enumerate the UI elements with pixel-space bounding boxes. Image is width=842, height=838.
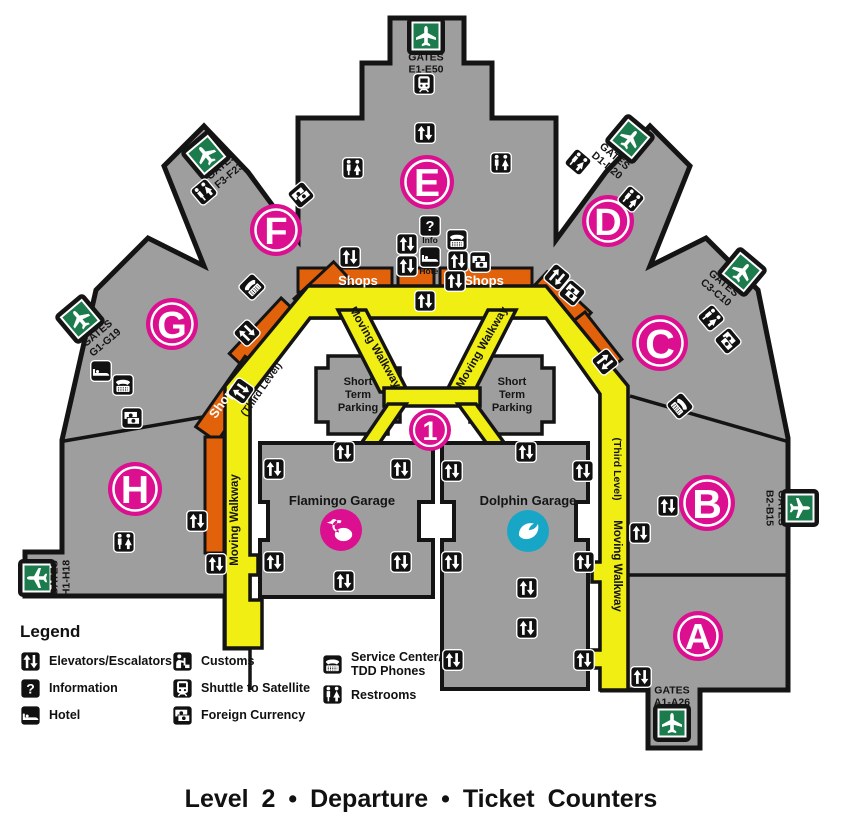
elev-icon — [264, 552, 285, 573]
terminal-f-marker: F — [250, 204, 302, 256]
dolphin-garage-label: Dolphin Garage — [480, 493, 577, 508]
elev-icon — [391, 552, 412, 573]
rest-icon — [114, 532, 135, 553]
elev-icon — [574, 552, 595, 573]
flamingo-icon — [320, 509, 362, 551]
page-title: Level 2 • Departure • Ticket Counters — [0, 785, 842, 814]
dolphin-icon — [507, 510, 549, 552]
legend-item: Customs — [172, 650, 322, 672]
elev-icon — [517, 578, 538, 599]
terminal-c-marker: C — [632, 315, 688, 371]
elev-icon — [630, 523, 651, 544]
restrooms-icon — [322, 684, 343, 705]
elev-icon — [206, 554, 227, 575]
legend-column: Elevators/Escalators Information Hotel — [20, 650, 172, 731]
elev-icon — [187, 511, 208, 532]
elev-icon — [415, 291, 436, 312]
svg-text:GATES: GATES — [49, 560, 61, 595]
moving-walkway-label: Moving Walkway — [611, 520, 623, 612]
svg-text:A1-A26: A1-A26 — [654, 697, 690, 709]
gates-h-label: GATESH1-H18 — [49, 560, 73, 596]
legend-item: Service Center/ TDD Phones — [322, 650, 492, 679]
elev-icon — [573, 461, 594, 482]
legend-item-label: Hotel — [49, 708, 80, 722]
hotel-icon — [420, 247, 441, 268]
short-term-parking-label: Term — [499, 389, 525, 401]
foreign-currency-icon — [172, 705, 193, 726]
svg-text:H1-H18: H1-H18 — [61, 560, 73, 596]
terminal-h-marker: H — [108, 462, 162, 516]
legend-item-label: Foreign Currency — [201, 708, 305, 722]
elev-icon — [391, 459, 412, 480]
flamingo-garage-label: Flamingo Garage — [289, 493, 395, 508]
svg-text:GATES: GATES — [776, 490, 788, 525]
terminal-e-marker: E — [400, 155, 454, 209]
elev-icon — [334, 571, 355, 592]
legend: Legend Elevators/Escalators Information … — [20, 622, 500, 731]
legend-item-label: Shuttle to Satellite — [201, 681, 310, 695]
service-icon — [447, 230, 468, 251]
info-icon — [420, 216, 441, 237]
svg-text:E: E — [414, 162, 440, 205]
legend-item: Restrooms — [322, 684, 492, 706]
svg-text:F: F — [264, 211, 287, 253]
elev-icon — [442, 461, 463, 482]
shops-label: Shops — [338, 273, 378, 288]
gates-a-label: GATESA1-A26 — [654, 685, 690, 709]
short-term-parking-label: Term — [345, 389, 371, 401]
elev-icon — [445, 271, 466, 292]
shops-segment — [205, 437, 224, 553]
gates-e-sign — [407, 17, 445, 55]
elev-icon — [264, 459, 285, 480]
short-term-parking-label: Parking — [338, 402, 378, 414]
elev-icon — [397, 234, 418, 255]
terminal-b-marker: B — [679, 475, 735, 531]
svg-text:GATES: GATES — [654, 685, 689, 697]
terminal-g-marker: G — [146, 298, 198, 350]
legend-item-label: Restrooms — [351, 688, 416, 702]
svg-text:B2-B15: B2-B15 — [764, 490, 776, 526]
shuttle-icon — [414, 74, 435, 95]
customs-icon — [172, 651, 193, 672]
legend-item-label: Service Center/ TDD Phones — [351, 650, 442, 679]
currency-icon — [122, 408, 143, 429]
hotel-icon — [91, 361, 112, 382]
svg-text:1: 1 — [422, 416, 437, 446]
legend-item: Shuttle to Satellite — [172, 677, 322, 699]
airport-terminal-map: ? — [0, 0, 842, 838]
svg-text:A: A — [685, 616, 711, 657]
elev-icon — [516, 442, 537, 463]
elev-icon — [658, 496, 679, 517]
information-icon — [20, 678, 41, 699]
third-level-label: (Third Level) — [611, 437, 623, 500]
elev-icon — [334, 442, 355, 463]
elev-icon — [448, 251, 469, 272]
legend-column: Customs Shuttle to Satellite Foreign Cur… — [172, 650, 322, 731]
hotel-icon — [20, 705, 41, 726]
elev-icon — [340, 247, 361, 268]
legend-column: Service Center/ TDD Phones Restrooms — [322, 650, 492, 731]
moving-walkway-label: Moving Walkway — [229, 474, 241, 566]
elev-icon — [442, 552, 463, 573]
gates-b-label: GATESB2-B15 — [764, 490, 788, 526]
legend-item: Elevators/Escalators — [20, 650, 172, 672]
short-term-parking-label: Parking — [492, 402, 532, 414]
legend-heading: Legend — [20, 622, 500, 642]
gates-e-label: GATESE1-E50 — [408, 52, 443, 76]
elev-icon — [517, 618, 538, 639]
shuttle-to-satellite-icon — [172, 678, 193, 699]
hub-1-marker: 1 — [409, 409, 451, 451]
gates-a-sign — [653, 704, 691, 742]
terminal-a-marker: A — [673, 611, 723, 661]
elev-icon — [574, 650, 595, 671]
service-center-tdd-phones-icon — [322, 654, 343, 675]
rest-icon — [491, 153, 512, 174]
short-term-parking-label: Short — [344, 376, 373, 388]
svg-text:H: H — [121, 469, 149, 512]
legend-item: Hotel — [20, 704, 172, 726]
shops-label: Shops — [464, 273, 504, 288]
legend-item-label: Elevators/Escalators — [49, 654, 172, 668]
currency-icon — [470, 252, 491, 273]
rest-icon — [564, 148, 593, 177]
legend-item: Foreign Currency — [172, 704, 322, 726]
service-icon — [113, 375, 134, 396]
svg-text:D: D — [594, 202, 621, 244]
svg-text:GATES: GATES — [408, 52, 443, 64]
svg-text:C: C — [645, 321, 675, 367]
svg-text:B: B — [692, 481, 722, 527]
elevators-escalators-icon — [20, 651, 41, 672]
rest-icon — [343, 158, 364, 179]
legend-item: Information — [20, 677, 172, 699]
short-term-parking-label: Short — [498, 376, 527, 388]
legend-item-label: Information — [49, 681, 118, 695]
elev-icon — [631, 667, 652, 688]
elev-icon — [397, 256, 418, 277]
svg-text:G: G — [157, 305, 187, 347]
legend-item-label: Customs — [201, 654, 254, 668]
elev-icon — [415, 123, 436, 144]
